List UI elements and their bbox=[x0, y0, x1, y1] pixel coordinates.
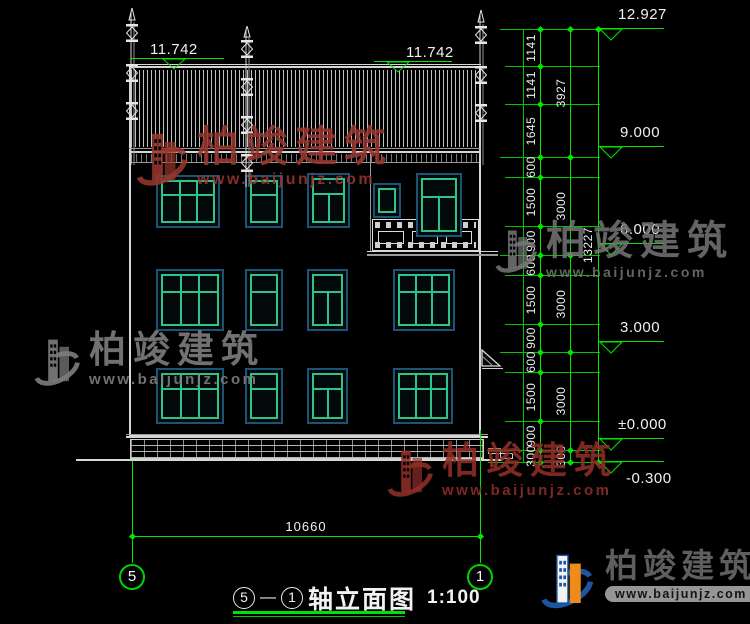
title-scale: 1:100 bbox=[427, 587, 481, 609]
level-triangle bbox=[162, 58, 186, 70]
balcony-slab-lower bbox=[367, 254, 498, 256]
axis-line-left bbox=[132, 461, 133, 563]
level-value: 11.742 bbox=[406, 44, 454, 61]
dim-label: 600 bbox=[523, 245, 539, 285]
window bbox=[393, 269, 455, 331]
level-triangle bbox=[599, 461, 623, 474]
level-value: -0.300 bbox=[626, 470, 672, 487]
base-molding-upper bbox=[126, 434, 488, 435]
dim-label: 300 bbox=[523, 436, 539, 476]
balcony-window bbox=[373, 183, 401, 218]
brick-plinth bbox=[130, 439, 484, 459]
dim-label: 3927 bbox=[553, 73, 569, 113]
window bbox=[307, 173, 350, 228]
roof-finial-right bbox=[470, 10, 492, 166]
fascia-band bbox=[131, 154, 479, 163]
level-triangle bbox=[599, 438, 623, 451]
level-value: 3.000 bbox=[620, 319, 660, 336]
level-value: 12.927 bbox=[618, 6, 667, 23]
eave-line-upper bbox=[129, 148, 481, 149]
level-value: ±0.000 bbox=[618, 416, 667, 433]
window bbox=[307, 269, 348, 331]
base-molding bbox=[126, 436, 488, 438]
extension-line bbox=[505, 372, 600, 373]
level-value: 11.742 bbox=[150, 41, 198, 58]
level-value: 9.000 bbox=[620, 124, 660, 141]
extension-line bbox=[505, 177, 600, 178]
level-triangle bbox=[599, 243, 623, 256]
title-underline bbox=[233, 611, 405, 614]
elevation-drawing: 11.742 11.742 1141 1141 1645 600 150 bbox=[0, 0, 750, 624]
level-value: 6.000 bbox=[620, 221, 660, 238]
window bbox=[156, 269, 224, 331]
roof-tile-hatch bbox=[131, 70, 479, 147]
window bbox=[307, 368, 348, 424]
window bbox=[156, 368, 224, 424]
axis-number: 5 bbox=[128, 568, 136, 585]
title-axis-from: 5 bbox=[233, 587, 255, 609]
dim-line-width bbox=[132, 536, 481, 537]
dim-tick bbox=[476, 532, 483, 539]
watermark-url: www.baijunjz.com bbox=[546, 264, 734, 280]
dim-label: 3000 bbox=[553, 284, 569, 324]
title-axis-to: 1 bbox=[281, 587, 303, 609]
window bbox=[245, 269, 283, 331]
dim-label: 1141 bbox=[523, 28, 539, 68]
dim-label: 600 bbox=[523, 147, 539, 187]
balcony-door bbox=[416, 173, 462, 237]
window bbox=[245, 368, 283, 424]
dim-label: 1500 bbox=[523, 182, 539, 222]
watermark-logo-icon bbox=[33, 331, 81, 393]
axis-line-right bbox=[480, 430, 481, 563]
dim-tick bbox=[128, 532, 135, 539]
company-logo-brand: 柏竣建筑 bbox=[605, 548, 750, 584]
extension-line bbox=[500, 157, 600, 158]
extension-line bbox=[505, 324, 600, 325]
balcony-side-line bbox=[370, 153, 371, 252]
watermark-url: www.baijunjz.com bbox=[442, 482, 618, 499]
title-separator: — bbox=[260, 589, 276, 607]
dim-label: 3000 bbox=[553, 381, 569, 421]
extension-line bbox=[505, 275, 600, 276]
dim-tick bbox=[567, 348, 574, 355]
railing-lattice-bottom bbox=[375, 242, 476, 248]
company-logo: 柏竣建筑 www.baijunjz.com bbox=[535, 548, 750, 614]
company-logo-url: www.baijunjz.com bbox=[605, 586, 750, 602]
axis-bubble-5: 5 bbox=[119, 564, 145, 590]
extension-line bbox=[505, 421, 600, 422]
dim-tick bbox=[567, 25, 574, 32]
company-logo-icon bbox=[535, 548, 599, 614]
dim-chain-inner bbox=[540, 29, 541, 462]
level-triangle bbox=[599, 28, 623, 41]
dim-tick bbox=[567, 153, 574, 160]
dim-tick bbox=[567, 251, 574, 258]
roof-finial-left bbox=[121, 8, 143, 166]
extension-line bbox=[500, 352, 600, 353]
ground-line bbox=[76, 459, 502, 461]
extension-line bbox=[505, 66, 600, 67]
dim-label: 3000 bbox=[553, 186, 569, 226]
dim-label: 1500 bbox=[523, 280, 539, 320]
level-triangle bbox=[599, 341, 623, 354]
dim-label: 1141 bbox=[523, 65, 539, 105]
dim-label: 1645 bbox=[523, 111, 539, 151]
extension-line bbox=[500, 29, 600, 30]
eave-line bbox=[129, 151, 481, 153]
dim-chain-mid bbox=[570, 29, 571, 462]
balcony-slab bbox=[367, 251, 498, 252]
dim-label: 300 bbox=[553, 436, 569, 476]
window bbox=[156, 175, 220, 228]
dim-label-width: 10660 bbox=[266, 519, 346, 534]
roof-finial-middle bbox=[236, 26, 258, 188]
dim-label: 1500 bbox=[523, 377, 539, 417]
title-underline-2 bbox=[233, 616, 405, 617]
dim-label: 600 bbox=[523, 342, 539, 382]
window bbox=[393, 368, 453, 424]
dim-label-total: 13227 bbox=[580, 225, 596, 265]
level-triangle bbox=[386, 61, 410, 73]
level-triangle bbox=[599, 146, 623, 159]
